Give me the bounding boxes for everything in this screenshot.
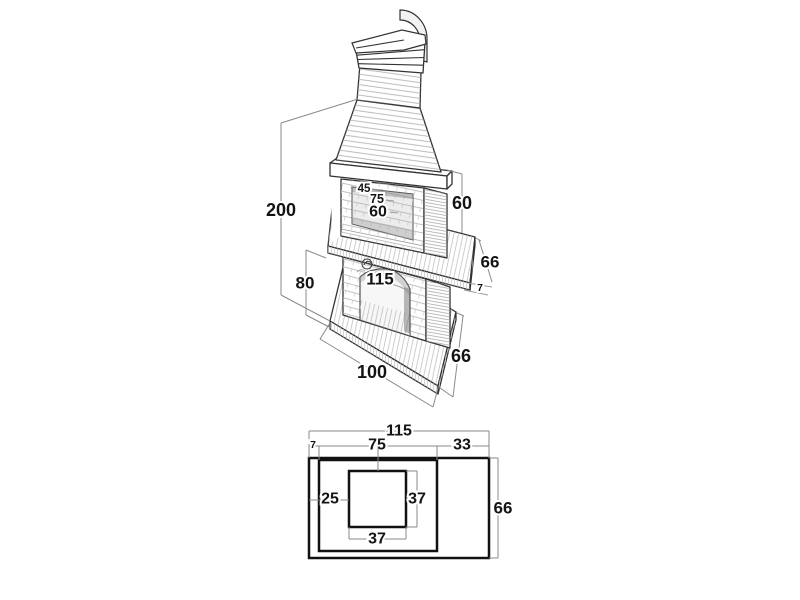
- chimney-cap: [352, 10, 427, 73]
- plan-right-offset-label: 33: [453, 437, 471, 454]
- plan-view: 115 7 75 33 25 37 37 66: [309, 423, 512, 559]
- dim-pedestal-height-label: 80: [296, 274, 315, 293]
- plan-flue-square: [349, 471, 406, 527]
- arch-right-jamb-shade: [404, 287, 410, 334]
- dim-total-height-label: 200: [266, 200, 296, 220]
- dim-worktop-thickness-label: 7: [477, 282, 483, 294]
- dim-worktop-width-label: 115: [366, 270, 393, 289]
- plan-pedestal-width-label: 75: [368, 437, 386, 454]
- dim-base-depth-label: 66: [451, 346, 471, 366]
- hood: [336, 100, 441, 172]
- plan-dimensions: 115 7 75 33 25 37 37 66: [309, 423, 512, 559]
- dim-200-top-extension: [281, 99, 358, 123]
- plan-outer-rect: [309, 458, 489, 558]
- plan-flue-depth-label: 37: [408, 491, 426, 508]
- dim-66-base-bottom-extension: [440, 388, 453, 397]
- mask: [331, 190, 341, 242]
- dim-80-bottom-extension: [306, 315, 331, 328]
- dim-80-top-extension: [306, 250, 326, 258]
- technical-drawing-canvas: 200 80 100 66 60 66: [0, 0, 800, 600]
- dim-7-lower-line: [464, 290, 488, 295]
- plan-overall-width-label: 115: [386, 423, 412, 440]
- plan-flue-width-label: 37: [368, 531, 386, 548]
- isometric-view: 200 80 100 66 60 66: [266, 10, 499, 407]
- dim-66-top-extension: [476, 238, 481, 241]
- dim-66-base-top-extension: [457, 313, 464, 316]
- dim-opening-depth-label: 45: [358, 183, 371, 195]
- dim-base-width-label: 100: [357, 362, 387, 382]
- dim-firebox-height-label: 60: [452, 193, 472, 213]
- dim-worktop-depth-label: 66: [481, 253, 500, 272]
- plan-left-offset-label: 7: [310, 439, 316, 451]
- plan-overall-depth-label: 66: [494, 499, 513, 518]
- fireplace-dimension-drawing: 200 80 100 66 60 66: [0, 0, 800, 600]
- plan-flue-offset-label: 25: [321, 491, 339, 508]
- dim-opening-height-label: 60: [369, 204, 387, 221]
